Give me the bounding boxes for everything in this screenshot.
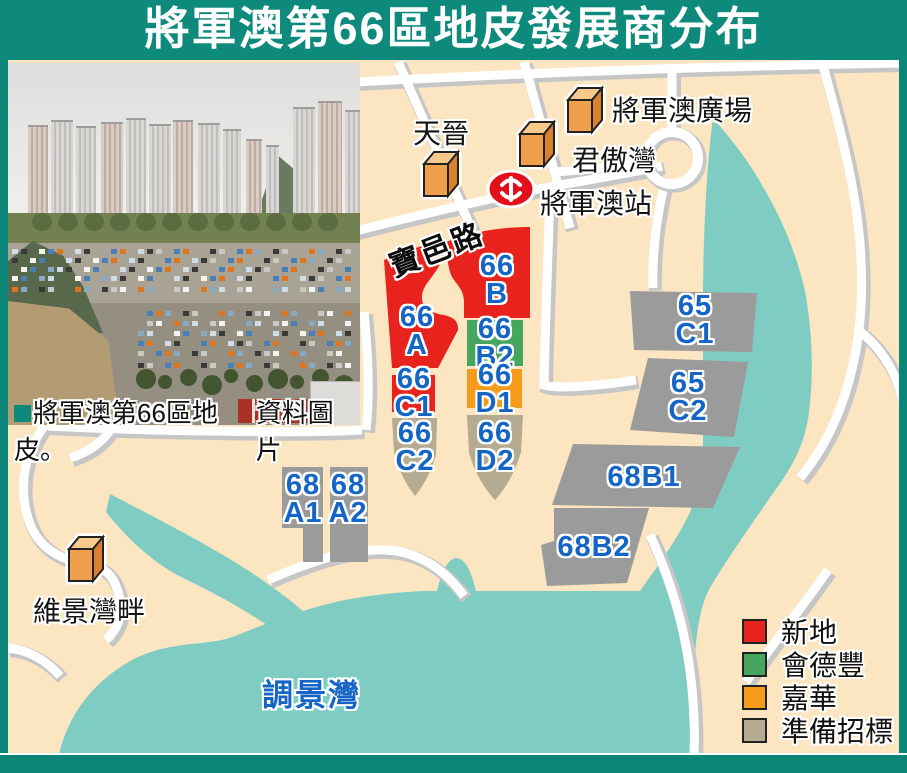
plot-label-68b2: 68B2 (557, 533, 630, 561)
photo-vehicle (147, 276, 153, 281)
photo-vehicle (291, 267, 297, 272)
photo-vehicle (21, 276, 27, 281)
photo-vehicle (156, 267, 162, 272)
photo-shrub (214, 213, 234, 231)
plot-label-66c2: 66 C2 (395, 419, 434, 475)
photo-tower (293, 107, 315, 217)
photo-vehicle (318, 276, 324, 281)
photo-tower (266, 145, 279, 217)
photo-vehicle (201, 331, 207, 336)
photo-vehicle (228, 363, 234, 368)
photo-vehicle (255, 351, 261, 356)
photo-vehicle (237, 363, 243, 368)
photo-vehicle (309, 276, 315, 281)
photo-vehicle (210, 249, 216, 254)
photo-vehicle (210, 331, 216, 336)
photo-vehicle (84, 287, 90, 292)
photo-vehicle (282, 267, 288, 272)
photo-vehicle (300, 351, 306, 356)
photo-vehicle (48, 276, 54, 281)
photo-vehicle (300, 341, 306, 346)
photo-vehicle (120, 287, 126, 292)
photo-vehicle (201, 287, 207, 292)
photo-vehicle (138, 276, 144, 281)
photo-vehicle (282, 276, 288, 281)
photo-vehicle (273, 276, 279, 281)
photo-vehicle (246, 267, 252, 272)
photo-tree (246, 375, 263, 392)
frame-border-bottom (0, 755, 907, 773)
photo-vehicle (300, 331, 306, 336)
photo-vehicle (156, 321, 162, 326)
photo-shrub (162, 213, 182, 231)
photo-vehicle (12, 258, 18, 263)
photo-vehicle (291, 351, 297, 356)
photo-vehicle (264, 267, 270, 272)
photo-tree (180, 369, 197, 386)
photo-tower (149, 124, 171, 217)
photo-vehicle (30, 258, 36, 263)
photo-vehicle (336, 331, 342, 336)
photo-vehicle (255, 311, 261, 316)
legend-row-tender: 準備招標 (742, 710, 893, 750)
photo-vehicle (174, 287, 180, 292)
photo-vehicle (291, 321, 297, 326)
photo-vehicle (273, 321, 279, 326)
photo-vehicle (183, 311, 189, 316)
photo-vehicle (156, 249, 162, 254)
plot-label-65c1: 65 C1 (675, 292, 714, 348)
photo-vehicle (336, 363, 342, 368)
photo-vehicle (318, 267, 324, 272)
plot-label-66b: 66 B (480, 252, 514, 308)
photo-shrub (266, 213, 286, 231)
frame-border-right (899, 60, 907, 773)
photo-vehicle (84, 249, 90, 254)
photo-vehicle (21, 249, 27, 254)
photo-vehicle (192, 311, 198, 316)
photo-vehicle (48, 287, 54, 292)
photo-vehicle (30, 267, 36, 272)
photo-vehicle (273, 287, 279, 292)
photo-vehicle (291, 258, 297, 263)
photo-vehicle (345, 249, 351, 254)
frame-border-left (0, 60, 8, 773)
plot-label-68a2: 68 A2 (328, 471, 367, 527)
photo-vehicle (309, 363, 315, 368)
photo-vehicle (75, 249, 81, 254)
photo-vehicle (300, 363, 306, 368)
photo-caption-bar: 將軍澳第66區地皮。 資料圖片 (8, 393, 360, 467)
photo-vehicle (219, 311, 225, 316)
photo-vehicle (246, 276, 252, 281)
place-label-tko-plaza: 將軍澳廣場 (612, 89, 752, 129)
photo-vehicle (237, 351, 243, 356)
photo-vehicle (345, 311, 351, 316)
photo-vehicle (246, 249, 252, 254)
photo-vehicle (138, 287, 144, 292)
photo-shrub (58, 213, 78, 231)
photo-tree (158, 375, 172, 389)
plot-label-66c1: 66 C1 (394, 365, 433, 421)
photo-vehicle (183, 249, 189, 254)
photo-vehicle (318, 331, 324, 336)
legend-swatch-tan (742, 718, 767, 743)
photo-vehicle (237, 341, 243, 346)
photo-vehicle (237, 276, 243, 281)
photo-vehicle (174, 258, 180, 263)
legend-label-tender: 準備招標 (781, 710, 893, 750)
photo-vehicle (246, 287, 252, 292)
photo-vehicle (48, 249, 54, 254)
photo-vehicle (309, 341, 315, 346)
photo-tree (202, 375, 222, 395)
photo-vehicle (147, 287, 153, 292)
photo-vehicle (264, 363, 270, 368)
photo-vehicle (345, 341, 351, 346)
photo-tower (223, 129, 241, 217)
photo-vehicle (39, 249, 45, 254)
photo-vehicle (300, 276, 306, 281)
photo-tower (28, 125, 48, 217)
place-label-ocean-shores: 維景灣畔 (33, 590, 145, 630)
photo-vehicle (273, 258, 279, 263)
photo-vehicle (192, 351, 198, 356)
photo-vehicle (246, 363, 252, 368)
plot-label-66d2: 66 D2 (475, 419, 514, 475)
photo-vehicle (201, 351, 207, 356)
photo-vehicle (201, 363, 207, 368)
photo-vehicle (345, 363, 351, 368)
photo-vehicle (210, 341, 216, 346)
photo-vehicle (318, 311, 324, 316)
photo-vehicle (237, 331, 243, 336)
photo-vehicle (282, 331, 288, 336)
photo-vehicle (318, 249, 324, 254)
photo-tower (198, 123, 220, 217)
photo-vehicle (327, 267, 333, 272)
photo-vehicle (219, 276, 225, 281)
photo-vehicle (219, 267, 225, 272)
photo-vehicle (336, 351, 342, 356)
photo-vehicle (147, 331, 153, 336)
photo-vehicle (210, 287, 216, 292)
photo-vehicle (201, 341, 207, 346)
photo-vehicle (183, 331, 189, 336)
legend-swatch-red (742, 619, 767, 644)
photo-vehicle (174, 363, 180, 368)
photo-tower (173, 120, 193, 217)
photo-shrub (318, 213, 338, 231)
photo-vehicle (174, 351, 180, 356)
photo-vehicle (12, 249, 18, 254)
photo-vehicle (147, 341, 153, 346)
legend-swatch-green (742, 652, 767, 677)
photo-vehicle (147, 249, 153, 254)
plot-label-66a: 66 A (400, 303, 434, 359)
photo-vehicle (183, 321, 189, 326)
photo-vehicle (129, 267, 135, 272)
photo-vehicle (174, 331, 180, 336)
photo-vehicle (174, 341, 180, 346)
photo-vehicle (228, 351, 234, 356)
infographic: 將軍澳第66區地皮。 資料圖片 天晉 君傲灣 將軍澳廣場 將軍澳站 維景灣畔 寶… (0, 0, 907, 773)
photo-vehicle (183, 276, 189, 281)
photo-vehicle (345, 321, 351, 326)
photo-vehicle (336, 276, 342, 281)
photo-vehicle (102, 287, 108, 292)
photo-tower (76, 126, 96, 217)
photo-shrub (32, 213, 52, 231)
photo-vehicle (165, 363, 171, 368)
page-title: 將軍澳第66區地皮發展商分布 (0, 0, 907, 60)
photo-vehicle (75, 287, 81, 292)
photo-vehicle (192, 321, 198, 326)
photo-vehicle (228, 311, 234, 316)
photo-vehicle (120, 249, 126, 254)
photo-vehicle (165, 267, 171, 272)
photo-caption-text: 將軍澳第66區地皮。 (14, 393, 256, 467)
photo-vehicle (282, 321, 288, 326)
photo-vehicle (174, 276, 180, 281)
photo-shrub (84, 213, 104, 231)
photo-vehicle (336, 287, 342, 292)
photo-vehicle (120, 267, 126, 272)
photo-tree (224, 369, 238, 383)
photo-vehicle (93, 267, 99, 272)
photo-vehicle (336, 249, 342, 254)
photo-vehicle (192, 258, 198, 263)
photo-vehicle (21, 287, 27, 292)
photo-vehicle (138, 363, 144, 368)
photo-vehicle (138, 341, 144, 346)
photo-vehicle (345, 267, 351, 272)
place-label-the-grandiose: 君傲灣 (572, 139, 656, 179)
photo-vehicle (210, 276, 216, 281)
photo-vehicle (264, 341, 270, 346)
photo-vehicle (102, 258, 108, 263)
photo-vehicle (318, 287, 324, 292)
photo-vehicle (12, 287, 18, 292)
plot-label-65c2: 65 C2 (668, 369, 707, 425)
photo-vehicle (264, 258, 270, 263)
photo-tower (51, 120, 73, 217)
photo-vehicle (210, 321, 216, 326)
photo-vehicle (264, 311, 270, 316)
photo-vehicle (156, 351, 162, 356)
building-cube-icon-tko-plaza (568, 88, 602, 132)
photo-vehicle (138, 351, 144, 356)
photo-vehicle (93, 258, 99, 263)
plot-label-66d1: 66 D1 (475, 361, 514, 417)
building-cube-icon-tin-chun (424, 152, 458, 196)
photo-vehicle (111, 276, 117, 281)
photo-tower (318, 101, 342, 217)
photo-vehicle (237, 287, 243, 292)
photo-vehicle (345, 276, 351, 281)
photo-vehicle (300, 287, 306, 292)
photo-vehicle (66, 267, 72, 272)
photo-vehicle (255, 321, 261, 326)
photo-vehicle (300, 258, 306, 263)
photo-vehicle (75, 276, 81, 281)
photo-vehicle (282, 311, 288, 316)
photo-vehicle (327, 341, 333, 346)
photo-credit: 資料圖片 (256, 393, 354, 467)
photo-vehicle (273, 341, 279, 346)
place-label-tin-chun: 天晉 (413, 112, 469, 152)
photo-vehicle (165, 311, 171, 316)
photo-vehicle (282, 249, 288, 254)
photo-vehicle (192, 267, 198, 272)
photo-tower (101, 122, 123, 217)
photo-vehicle (48, 267, 54, 272)
photo-vehicle (183, 267, 189, 272)
photo-vehicle (246, 331, 252, 336)
photo-shrub (292, 213, 312, 231)
photo-vehicle (327, 363, 333, 368)
photo-shrub (188, 213, 208, 231)
photo-vehicle (147, 267, 153, 272)
plot-label-68b1: 68B1 (607, 463, 680, 491)
photo-vehicle (273, 249, 279, 254)
photo-tower (126, 118, 146, 217)
photo-vehicle (318, 321, 324, 326)
photo-vehicle (111, 249, 117, 254)
photo-vehicle (219, 321, 225, 326)
photo-vehicle (174, 321, 180, 326)
photo-vehicle (210, 363, 216, 368)
photo-vehicle (183, 287, 189, 292)
photo-tower (345, 110, 360, 217)
photo-vehicle (12, 276, 18, 281)
photo-vehicle (102, 276, 108, 281)
photo-vehicle (255, 267, 261, 272)
building-cube-icon-ocean-shores (69, 537, 103, 581)
photo-vehicle (237, 258, 243, 263)
plot-label-68a1: 68 A1 (283, 471, 322, 527)
legend-swatch-orange (742, 685, 767, 710)
mtr-station-icon (488, 171, 534, 207)
photo-vehicle (336, 341, 342, 346)
photo-vehicle (228, 341, 234, 346)
photo-vehicle (120, 276, 126, 281)
photo-vehicle (39, 258, 45, 263)
photo-vehicle (273, 331, 279, 336)
photo-inset (8, 63, 360, 425)
photo-vehicle (165, 341, 171, 346)
photo-vehicle (75, 258, 81, 263)
photo-vehicle (138, 331, 144, 336)
photo-vehicle (309, 321, 315, 326)
photo-tower (246, 139, 262, 217)
photo-vehicle (336, 258, 342, 263)
photo-vehicle (219, 287, 225, 292)
photo-vehicle (273, 351, 279, 356)
photo-vehicle (327, 351, 333, 356)
photo-vehicle (246, 321, 252, 326)
photo-vehicle (84, 276, 90, 281)
photo-vehicle (84, 267, 90, 272)
photo-vehicle (282, 287, 288, 292)
photo-vehicle (66, 258, 72, 263)
building-cube-icon-the-grandiose (520, 122, 554, 166)
caption-square-icon (14, 405, 31, 422)
photo-vehicle (174, 249, 180, 254)
photo-vehicle (246, 311, 252, 316)
photo-shrub (136, 213, 156, 231)
photo-vehicle (57, 249, 63, 254)
photo-vehicle (111, 287, 117, 292)
photo-vehicle (21, 267, 27, 272)
photo-vehicle (39, 276, 45, 281)
photo-vehicle (111, 258, 117, 263)
photo-vehicle (201, 258, 207, 263)
photo-shrub (110, 213, 130, 231)
photo-vehicle (327, 311, 333, 316)
photo-vehicle (264, 351, 270, 356)
photo-vehicle (147, 363, 153, 368)
photo-vehicle (165, 351, 171, 356)
photo-vehicle (309, 287, 315, 292)
photo-tree (290, 375, 304, 389)
photo-vehicle (327, 258, 333, 263)
photo-vehicle (129, 258, 135, 263)
place-label-tko-station: 將軍澳站 (540, 182, 652, 222)
photo-vehicle (147, 311, 153, 316)
photo-vehicle (246, 341, 252, 346)
photo-shrub (240, 213, 260, 231)
photo-vehicle (255, 249, 261, 254)
photo-vehicle (309, 258, 315, 263)
photo-tree (136, 369, 156, 389)
photo-vehicle (165, 258, 171, 263)
photo-vehicle (237, 249, 243, 254)
photo-vehicle (228, 267, 234, 272)
photo-vehicle (39, 287, 45, 292)
photo-vehicle (345, 287, 351, 292)
photo-vehicle (228, 258, 234, 263)
water-label-rennies-mill-bay: 調景灣 (262, 670, 361, 715)
photo-vehicle (273, 363, 279, 368)
photo-vehicle (219, 249, 225, 254)
photo-vehicle (57, 267, 63, 272)
photo-vehicle (138, 249, 144, 254)
photo-vehicle (201, 276, 207, 281)
photo-vehicle (210, 258, 216, 263)
photo-vehicle (138, 258, 144, 263)
photo-vehicle (345, 331, 351, 336)
photo-vehicle (219, 331, 225, 336)
photo-vehicle (147, 321, 153, 326)
photo-vehicle (291, 311, 297, 316)
photo-vehicle (156, 311, 162, 316)
photo-tree (268, 369, 288, 389)
photo-vehicle (309, 331, 315, 336)
photo-vehicle (309, 249, 315, 254)
